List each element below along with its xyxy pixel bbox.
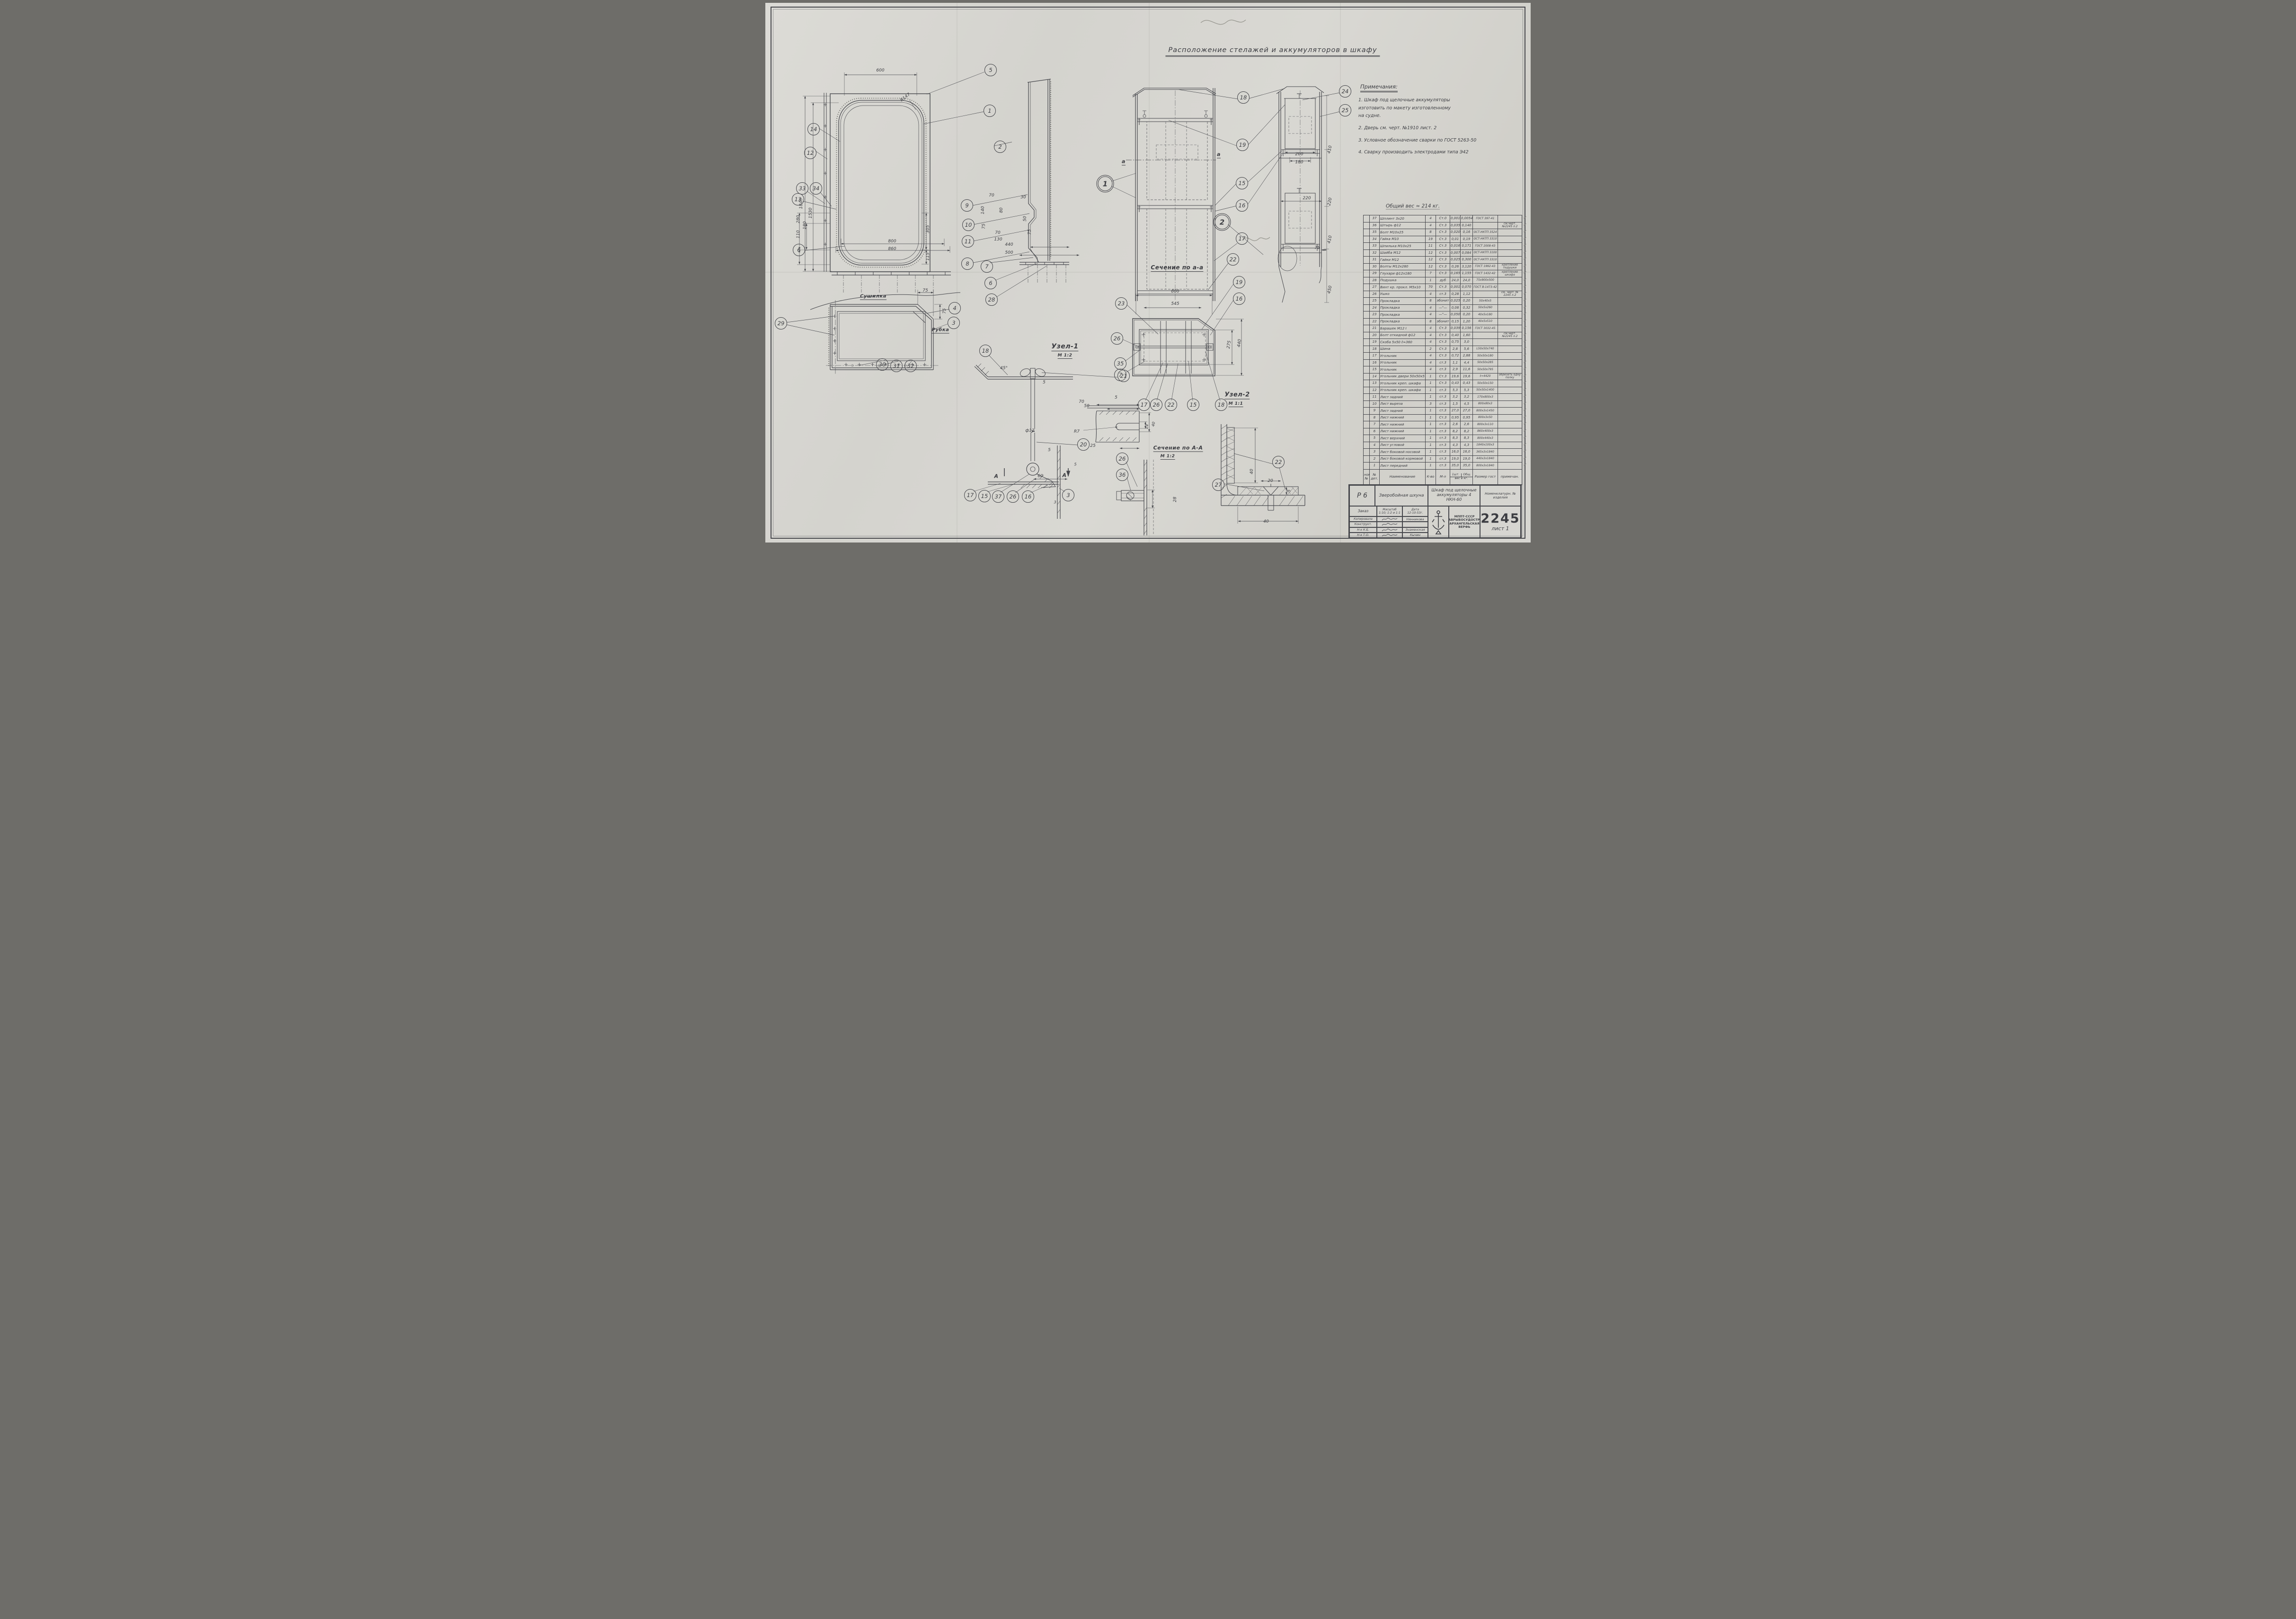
dim-label: 140 xyxy=(981,206,985,214)
pencil-checkmark: ✓ xyxy=(1523,242,1527,248)
callout-9: 9 xyxy=(961,199,973,212)
pencil-checkmark: ✓ xyxy=(1523,346,1527,351)
dim-label: 260 xyxy=(1295,152,1303,157)
blueprint-sheet: Расположение стелажей и аккумуляторов в … xyxy=(765,3,1531,543)
view-title: А xyxy=(994,473,998,480)
callout-36: 36 xyxy=(1116,469,1128,481)
dim-label: 75 xyxy=(982,223,986,229)
dim-label: 75 xyxy=(1314,246,1320,250)
pencil-checkmark: ✓ xyxy=(1523,256,1527,262)
view-title: Сечение по А-А xyxy=(1153,445,1203,452)
callout-35: 35 xyxy=(1114,357,1126,370)
view-title: Узел-2 xyxy=(1224,391,1250,400)
pencil-checkmark: ✓ xyxy=(1523,215,1527,221)
dim-label: 75 xyxy=(922,288,928,293)
pencil-checkmark: ✓ xyxy=(1523,325,1527,330)
pencil-checkmark: ✓ xyxy=(1523,284,1527,289)
pencil-checkmark: ✓ xyxy=(1523,236,1527,241)
dim-label: 50 xyxy=(1023,216,1028,221)
dim-label: 5 xyxy=(1074,463,1076,467)
dim-label: 40 xyxy=(1151,421,1156,427)
callout-13: 13 xyxy=(792,193,804,205)
pencil-checkmark: ✓ xyxy=(1523,318,1527,324)
dim-label: 80 xyxy=(999,207,1004,213)
callout-10: 10 xyxy=(962,219,975,231)
dim-label: 5 xyxy=(1043,380,1046,385)
dim-label: 60 xyxy=(1037,474,1043,479)
dim-label: 220 xyxy=(1303,196,1311,201)
callout-7: 7 xyxy=(981,260,993,273)
dim-label: 5 xyxy=(1048,448,1051,453)
pencil-checkmark: ✓ xyxy=(1523,407,1527,413)
callout-5: 5 xyxy=(984,64,997,76)
callout-25: 25 xyxy=(1339,104,1351,116)
dim-label: 305 xyxy=(926,225,931,233)
callout-19: 19 xyxy=(1233,276,1245,288)
dim-label: 500 xyxy=(1005,250,1013,255)
callout-16: 16 xyxy=(1233,293,1245,305)
callout-23: 23 xyxy=(1115,297,1127,310)
callout-12: 12 xyxy=(804,147,816,159)
pencil-checkmark: ✓ xyxy=(1523,421,1527,427)
callout-24: 24 xyxy=(1339,85,1351,98)
callout-27: 27 xyxy=(1212,479,1224,491)
view-title: а xyxy=(1217,151,1221,159)
dim-label: R7 xyxy=(1074,429,1080,434)
dim-label: 180 xyxy=(803,221,807,229)
pencil-checkmark: ✓ xyxy=(1523,428,1527,434)
pencil-checkmark: ✓ xyxy=(1523,366,1527,372)
pencil-checkmark: ✓ xyxy=(1523,304,1527,310)
pencil-checkmark: ✓ xyxy=(1523,373,1527,379)
callout-1: 1 xyxy=(1098,177,1113,191)
pencil-checkmark: ✓ xyxy=(1523,249,1527,255)
sheet-inner-frame xyxy=(773,9,1523,536)
dim-label: 45° xyxy=(1000,366,1008,371)
callout-21: 21 xyxy=(1117,370,1130,382)
pencil-checkmark: ✓ xyxy=(1523,291,1527,296)
view-title: М 1:2 xyxy=(1161,454,1175,460)
dim-label: 75 xyxy=(1028,229,1032,234)
dim-label: 440 xyxy=(1005,242,1013,247)
pencil-checkmark: ✓ xyxy=(1523,270,1527,276)
callout-28: 28 xyxy=(985,294,998,306)
dim-label: 800 xyxy=(888,239,896,244)
dim-label: 1530 xyxy=(808,208,813,219)
pencil-checkmark: ✓ xyxy=(1523,462,1527,468)
callout-17: 17 xyxy=(1236,232,1248,245)
dim-label: 5 xyxy=(1287,489,1292,492)
dim-label: 20 xyxy=(1268,479,1273,483)
view-title: М 1:2 xyxy=(1058,353,1073,359)
dim-label: 115 xyxy=(926,252,931,260)
callout-4: 4 xyxy=(949,302,961,314)
dim-label: 50 xyxy=(1084,404,1089,409)
pencil-checkmark: ✓ xyxy=(1523,414,1527,420)
callout-2: 2 xyxy=(1215,215,1230,230)
pencil-checkmark: ✓ xyxy=(1523,311,1527,317)
dim-label: 25 xyxy=(1090,444,1095,448)
callout-22: 22 xyxy=(1272,456,1285,468)
callout-26: 26 xyxy=(1007,490,1019,503)
pencil-checkmark: ✓ xyxy=(1523,277,1527,283)
callout-18: 18 xyxy=(979,345,992,357)
dim-label: 70 xyxy=(1079,400,1084,404)
pencil-checkmark: ✓ xyxy=(1523,380,1527,385)
dim-label: 180 xyxy=(1295,160,1303,165)
pencil-checkmark: ✓ xyxy=(1523,455,1527,461)
callout-15: 15 xyxy=(978,490,991,502)
callout-14: 14 xyxy=(807,123,820,135)
callout-20: 20 xyxy=(1077,438,1090,451)
dim-label: 40 xyxy=(1263,519,1268,524)
callout-6: 6 xyxy=(793,244,805,256)
callout-18: 18 xyxy=(1237,91,1250,104)
pencil-checkmark: ✓ xyxy=(1523,442,1527,447)
dim-label: 280 xyxy=(796,215,801,223)
view-title: Сечение по а-а xyxy=(1151,264,1203,272)
callout-32: 32 xyxy=(904,360,917,372)
callout-22: 22 xyxy=(1165,399,1177,411)
dim-label: 70 xyxy=(995,231,1000,235)
pencil-checkmark: ✓ xyxy=(1523,263,1527,269)
callout-26: 26 xyxy=(1111,332,1123,345)
view-title: А xyxy=(1062,472,1066,479)
view-title: Узел-1 xyxy=(1051,343,1078,351)
dim-label: 30 xyxy=(1020,195,1026,200)
callout-37: 37 xyxy=(992,490,1004,503)
callout-15: 15 xyxy=(1187,399,1199,411)
callout-2: 2 xyxy=(994,141,1006,153)
pencil-checkmark: ✓ xyxy=(1523,387,1527,392)
pencil-checkmark: ✓ xyxy=(1523,359,1527,365)
dim-label: 3 xyxy=(1054,500,1056,505)
callout-30: 30 xyxy=(876,358,888,371)
pencil-checkmark: ✓ xyxy=(1523,332,1527,338)
pencil-checkmark: ✓ xyxy=(1523,393,1527,399)
view-title: Сушилка xyxy=(860,294,886,300)
pencil-checkmark: ✓ xyxy=(1523,352,1527,358)
dim-label: 800 xyxy=(1171,289,1179,294)
dim-label: 70 xyxy=(989,193,994,198)
callout-31: 31 xyxy=(890,360,903,372)
dim-label: 14 xyxy=(1144,424,1150,429)
dim-label: 110 xyxy=(796,230,801,238)
callout-19: 19 xyxy=(1236,139,1249,151)
view-title: а xyxy=(1122,159,1126,166)
callout-11: 11 xyxy=(962,235,974,248)
callout-26: 26 xyxy=(1116,453,1128,465)
callout-17: 17 xyxy=(1138,399,1150,411)
callout-3: 3 xyxy=(1062,489,1074,501)
pencil-checkmark: ✓ xyxy=(1523,338,1527,344)
callout-34: 34 xyxy=(810,182,822,195)
pencil-checkmark: ✓ xyxy=(1523,222,1527,228)
pencil-checkmark: ✓ xyxy=(1523,229,1527,234)
callout-3: 3 xyxy=(948,317,960,329)
pencil-checkmark: ✓ xyxy=(1523,297,1527,303)
callout-29: 29 xyxy=(775,317,787,329)
callout-18: 18 xyxy=(1215,399,1227,411)
callout-17: 17 xyxy=(964,489,976,501)
callout-15: 15 xyxy=(1236,177,1248,189)
callout-6: 6 xyxy=(984,277,997,289)
callout-22: 22 xyxy=(1227,253,1239,266)
callout-8: 8 xyxy=(961,258,974,270)
dim-label: 28 xyxy=(1173,497,1178,502)
dim-label: ф12 xyxy=(1025,428,1034,433)
dim-label: 5 xyxy=(1115,395,1117,400)
callout-16: 16 xyxy=(1236,199,1248,212)
callout-26: 26 xyxy=(1150,399,1162,411)
pencil-checkmark: ✓ xyxy=(1523,435,1527,440)
dim-label: 600 xyxy=(876,68,884,73)
pencil-checkmark: ✓ xyxy=(1523,400,1527,406)
callout-1: 1 xyxy=(984,105,996,117)
dim-label: 545 xyxy=(1171,302,1179,306)
view-title: Рубка xyxy=(932,328,949,334)
pencil-checkmark: ✓ xyxy=(1523,448,1527,454)
dim-label: 75 xyxy=(942,308,947,313)
dim-label: 40 xyxy=(1250,469,1254,474)
dim-label: 130 xyxy=(994,237,1002,242)
dim-label: 860 xyxy=(888,247,896,251)
callout-16: 16 xyxy=(1022,490,1034,503)
view-title: М 1:1 xyxy=(1229,401,1243,407)
